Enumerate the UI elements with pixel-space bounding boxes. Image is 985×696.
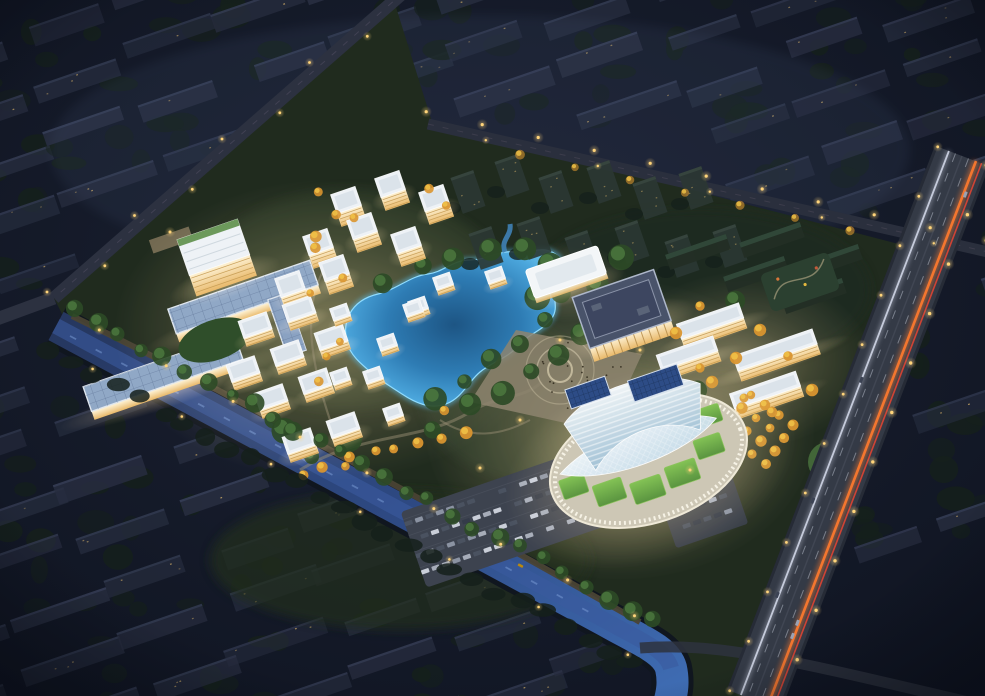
aerial-night-rendering <box>0 0 985 696</box>
rendering-stage <box>0 0 985 696</box>
